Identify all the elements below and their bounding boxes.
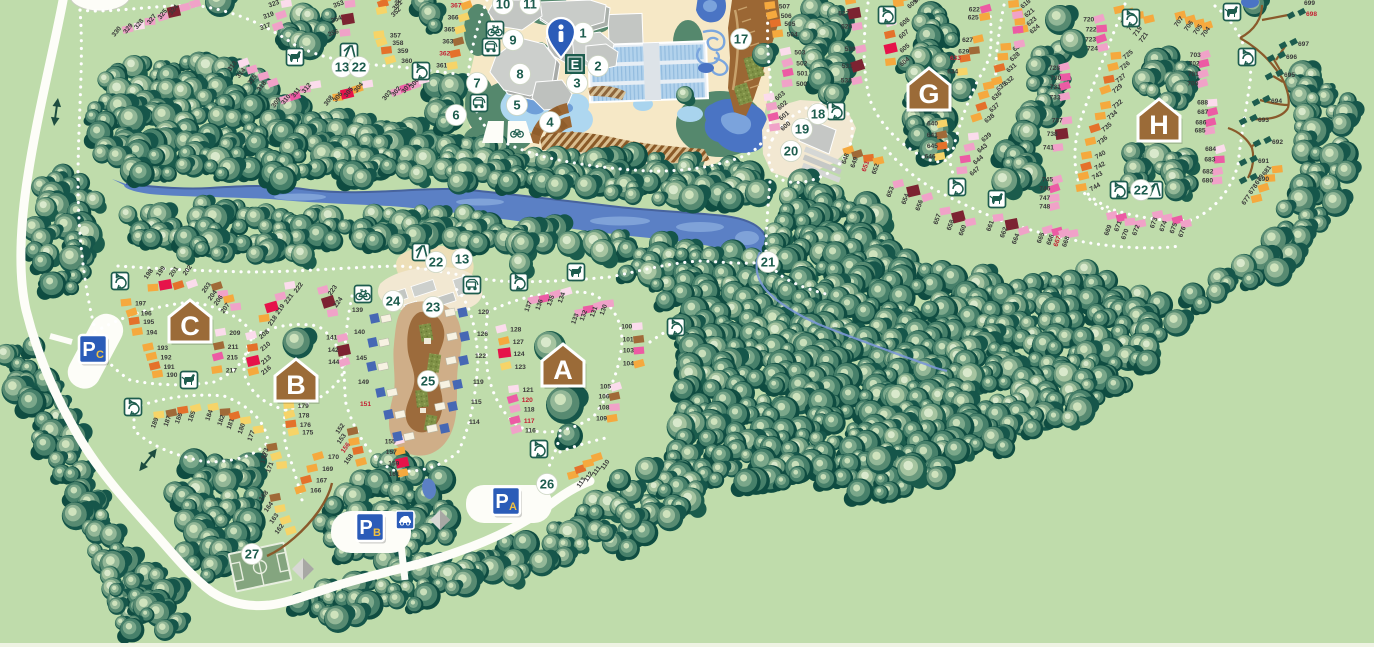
svg-text:170: 170 — [328, 454, 339, 461]
svg-text:157: 157 — [386, 449, 397, 456]
svg-text:211: 211 — [228, 344, 239, 351]
svg-text:145: 145 — [356, 355, 367, 362]
svg-text:684: 684 — [1205, 146, 1216, 153]
svg-text:7: 7 — [473, 76, 480, 91]
svg-text:737: 737 — [1052, 118, 1063, 125]
svg-text:190: 190 — [166, 372, 177, 379]
svg-text:366: 366 — [448, 14, 459, 21]
svg-text:106: 106 — [599, 393, 610, 400]
svg-text:108: 108 — [598, 404, 609, 411]
svg-text:361: 361 — [436, 63, 447, 70]
svg-text:685: 685 — [1195, 128, 1206, 135]
svg-text:191: 191 — [164, 364, 175, 371]
svg-text:723: 723 — [1085, 37, 1096, 44]
svg-text:730: 730 — [1050, 75, 1061, 82]
svg-text:151: 151 — [360, 401, 371, 408]
svg-text:C: C — [96, 349, 104, 361]
svg-text:21: 21 — [761, 255, 775, 270]
svg-text:A: A — [553, 355, 573, 385]
svg-text:192: 192 — [161, 354, 172, 361]
svg-text:194: 194 — [146, 330, 157, 337]
svg-text:625: 625 — [968, 15, 979, 22]
svg-text:501: 501 — [797, 71, 808, 78]
svg-text:144: 144 — [328, 359, 339, 366]
svg-text:693: 693 — [1258, 117, 1269, 124]
svg-text:126: 126 — [477, 331, 488, 338]
svg-text:360: 360 — [401, 58, 412, 65]
svg-text:22: 22 — [1134, 183, 1148, 198]
svg-text:694: 694 — [1271, 98, 1282, 105]
svg-text:123: 123 — [515, 364, 526, 371]
svg-text:26: 26 — [540, 477, 554, 492]
svg-text:680: 680 — [1202, 178, 1213, 185]
svg-text:197: 197 — [135, 300, 146, 307]
svg-text:129: 129 — [478, 309, 489, 316]
svg-text:P: P — [495, 491, 508, 513]
svg-text:2: 2 — [594, 59, 601, 74]
svg-text:167: 167 — [316, 478, 327, 485]
svg-text:691: 691 — [1258, 158, 1269, 165]
svg-text:748: 748 — [1039, 203, 1050, 210]
svg-text:683: 683 — [1204, 157, 1215, 164]
svg-text:359: 359 — [397, 48, 408, 55]
svg-text:215: 215 — [227, 355, 238, 362]
svg-text:363: 363 — [442, 38, 453, 45]
svg-text:1: 1 — [579, 26, 586, 41]
svg-text:P: P — [359, 517, 372, 539]
svg-text:527: 527 — [838, 10, 849, 17]
svg-text:696: 696 — [1286, 54, 1297, 61]
svg-text:E: E — [571, 57, 580, 72]
svg-text:701: 701 — [1188, 71, 1199, 78]
svg-text:703: 703 — [1190, 52, 1201, 59]
svg-text:746: 746 — [1039, 185, 1050, 192]
svg-text:646: 646 — [925, 154, 936, 161]
svg-text:109: 109 — [596, 415, 607, 422]
svg-text:B: B — [286, 370, 306, 400]
svg-text:19: 19 — [795, 122, 809, 137]
svg-text:682: 682 — [1202, 168, 1213, 175]
svg-text:209: 209 — [229, 330, 240, 337]
svg-text:121: 121 — [523, 387, 534, 394]
svg-text:161: 161 — [389, 471, 400, 478]
svg-text:122: 122 — [475, 353, 486, 360]
svg-text:149: 149 — [358, 379, 369, 386]
svg-text:529: 529 — [841, 23, 852, 30]
svg-text:159: 159 — [388, 461, 399, 468]
svg-text:504: 504 — [787, 32, 798, 39]
svg-text:217: 217 — [226, 368, 237, 375]
svg-text:9: 9 — [509, 33, 516, 48]
svg-text:100: 100 — [621, 323, 632, 330]
svg-text:502: 502 — [796, 61, 807, 68]
svg-text:176: 176 — [300, 422, 311, 429]
svg-text:724: 724 — [1087, 46, 1098, 53]
svg-text:731: 731 — [1050, 84, 1061, 91]
svg-text:720: 720 — [1083, 17, 1094, 24]
svg-text:503: 503 — [794, 49, 805, 56]
svg-text:141: 141 — [326, 335, 337, 342]
svg-text:627: 627 — [962, 37, 973, 44]
svg-text:634: 634 — [947, 69, 958, 76]
svg-text:P: P — [82, 339, 95, 361]
svg-text:8: 8 — [516, 67, 523, 82]
svg-text:119: 119 — [473, 379, 484, 386]
svg-text:179: 179 — [298, 403, 309, 410]
svg-text:103: 103 — [623, 348, 634, 355]
svg-text:745: 745 — [1042, 177, 1053, 184]
svg-text:116: 116 — [525, 427, 536, 434]
svg-text:733: 733 — [1050, 95, 1061, 102]
svg-text:687: 687 — [1197, 109, 1208, 116]
svg-text:692: 692 — [1272, 139, 1283, 146]
svg-text:738: 738 — [1047, 131, 1058, 138]
svg-text:357: 357 — [390, 33, 401, 40]
svg-text:358: 358 — [392, 40, 403, 47]
svg-text:698: 698 — [1306, 11, 1317, 18]
svg-text:178: 178 — [298, 412, 309, 419]
svg-text:140: 140 — [354, 329, 365, 336]
svg-text:115: 115 — [471, 399, 482, 406]
svg-text:128: 128 — [510, 327, 521, 334]
svg-text:17: 17 — [734, 32, 748, 47]
svg-text:505: 505 — [784, 21, 795, 28]
svg-text:633: 633 — [950, 55, 961, 62]
svg-text:690: 690 — [1258, 176, 1269, 183]
svg-text:4: 4 — [546, 115, 554, 130]
svg-text:142: 142 — [328, 347, 339, 354]
svg-text:22: 22 — [429, 255, 443, 270]
svg-text:22: 22 — [352, 60, 366, 75]
svg-text:506: 506 — [781, 13, 792, 20]
svg-text:367: 367 — [451, 2, 462, 9]
svg-text:169: 169 — [322, 466, 333, 473]
svg-text:B: B — [373, 527, 381, 539]
svg-text:700: 700 — [1187, 80, 1198, 87]
svg-text:5: 5 — [513, 98, 520, 113]
svg-text:G: G — [918, 79, 939, 109]
svg-text:10: 10 — [496, 0, 510, 12]
svg-text:640: 640 — [927, 121, 938, 128]
svg-text:645: 645 — [927, 143, 938, 150]
svg-text:139: 139 — [352, 307, 363, 314]
svg-text:104: 104 — [623, 361, 634, 368]
svg-text:699: 699 — [1304, 0, 1315, 7]
svg-text:3: 3 — [573, 76, 580, 91]
svg-text:697: 697 — [1298, 41, 1309, 48]
svg-text:27: 27 — [245, 547, 259, 562]
svg-text:175: 175 — [302, 430, 313, 437]
svg-text:13: 13 — [455, 252, 469, 267]
svg-text:195: 195 — [143, 319, 154, 326]
svg-text:641: 641 — [927, 132, 938, 139]
svg-text:507: 507 — [779, 3, 790, 10]
svg-text:11: 11 — [523, 0, 537, 12]
svg-text:533: 533 — [841, 78, 852, 85]
svg-text:531: 531 — [842, 63, 853, 70]
svg-text:127: 127 — [513, 339, 524, 346]
svg-text:C: C — [180, 311, 200, 341]
svg-text:18: 18 — [811, 107, 825, 122]
svg-text:20: 20 — [784, 144, 798, 159]
svg-text:114: 114 — [469, 419, 480, 426]
svg-text:686: 686 — [1195, 119, 1206, 126]
svg-text:6: 6 — [452, 108, 459, 123]
svg-text:365: 365 — [444, 27, 455, 34]
svg-text:117: 117 — [524, 418, 535, 425]
svg-text:105: 105 — [600, 384, 611, 391]
svg-text:193: 193 — [157, 345, 168, 352]
svg-text:530: 530 — [845, 46, 856, 53]
svg-text:H: H — [1149, 110, 1169, 140]
svg-text:196: 196 — [141, 310, 152, 317]
svg-text:622: 622 — [969, 7, 980, 14]
svg-text:500: 500 — [796, 81, 807, 88]
svg-text:25: 25 — [421, 374, 435, 389]
svg-text:13: 13 — [335, 60, 349, 75]
svg-text:120: 120 — [522, 397, 533, 404]
svg-text:722: 722 — [1086, 27, 1097, 34]
svg-text:728: 728 — [1049, 65, 1060, 72]
svg-text:741: 741 — [1043, 145, 1054, 152]
svg-text:A: A — [509, 501, 517, 513]
svg-text:747: 747 — [1039, 195, 1050, 202]
svg-text:362: 362 — [439, 51, 450, 58]
svg-text:23: 23 — [426, 300, 440, 315]
svg-text:124: 124 — [514, 351, 525, 358]
svg-text:24: 24 — [386, 294, 401, 309]
svg-text:166: 166 — [310, 487, 321, 494]
svg-text:688: 688 — [1197, 100, 1208, 107]
svg-text:702: 702 — [1189, 60, 1200, 67]
svg-text:118: 118 — [524, 407, 535, 414]
svg-text:695: 695 — [1284, 72, 1295, 79]
svg-text:101: 101 — [623, 336, 634, 343]
